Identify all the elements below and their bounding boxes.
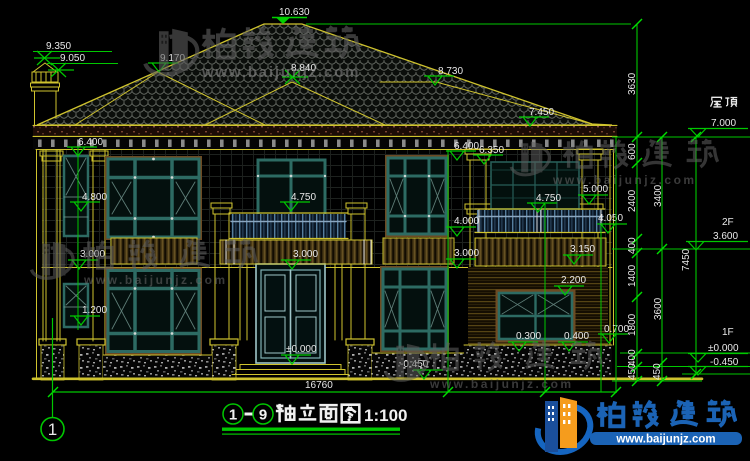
svg-text:16760: 16760: [305, 380, 333, 391]
svg-text:www.baijunjz.com: www.baijunjz.com: [83, 273, 228, 287]
svg-text:3600: 3600: [653, 297, 664, 320]
svg-text:600: 600: [627, 143, 638, 160]
svg-text:6.400: 6.400: [454, 141, 479, 152]
svg-text:7.000: 7.000: [711, 118, 736, 129]
svg-text:0.300: 0.300: [516, 331, 541, 342]
svg-text:1.200: 1.200: [82, 305, 107, 316]
svg-text:4.750: 4.750: [291, 192, 316, 203]
svg-text:9.350: 9.350: [46, 41, 71, 52]
svg-text:10.630: 10.630: [279, 7, 310, 18]
svg-text:4.800: 4.800: [82, 192, 107, 203]
svg-text:6.400: 6.400: [78, 137, 103, 148]
svg-text:3.150: 3.150: [570, 244, 595, 255]
svg-text:1800: 1800: [627, 313, 638, 336]
svg-text:1: 1: [48, 420, 57, 439]
svg-text:2F: 2F: [722, 217, 734, 228]
svg-text:400: 400: [627, 237, 638, 254]
svg-text:7450: 7450: [681, 248, 692, 271]
svg-text:3.000: 3.000: [293, 249, 318, 260]
svg-text:4.000: 4.000: [454, 216, 479, 227]
svg-text:www.baijunjz.com: www.baijunjz.com: [201, 64, 360, 81]
svg-text:www.baijunjz.com: www.baijunjz.com: [429, 377, 574, 391]
svg-text:7.450: 7.450: [529, 107, 554, 118]
svg-text:450: 450: [652, 363, 663, 380]
svg-text:±0.000: ±0.000: [286, 344, 317, 355]
svg-text:3400: 3400: [653, 184, 664, 207]
svg-text:1: 1: [229, 407, 237, 424]
svg-text:8.730: 8.730: [438, 66, 463, 77]
svg-text:4.750: 4.750: [536, 193, 561, 204]
svg-text:1:100: 1:100: [364, 406, 407, 425]
svg-text:1F: 1F: [722, 327, 734, 338]
svg-text:3630: 3630: [627, 72, 638, 95]
svg-text:3.000: 3.000: [454, 248, 479, 259]
svg-text:1400: 1400: [627, 264, 638, 287]
svg-text:6.350: 6.350: [479, 145, 504, 156]
svg-text:9.050: 9.050: [60, 53, 85, 64]
svg-text:9: 9: [259, 407, 267, 424]
svg-text:www.baijunjz.com: www.baijunjz.com: [552, 173, 697, 187]
svg-text:0.700: 0.700: [604, 324, 629, 335]
svg-text:4.050: 4.050: [598, 213, 623, 224]
svg-text:±0.000: ±0.000: [708, 343, 739, 354]
svg-text:0.400: 0.400: [564, 331, 589, 342]
svg-text:2.200: 2.200: [561, 275, 586, 286]
svg-text:www.baijunjz.com: www.baijunjz.com: [615, 434, 715, 446]
svg-text:450: 450: [627, 363, 638, 380]
svg-text:3.600: 3.600: [713, 231, 738, 242]
svg-text:2400: 2400: [627, 189, 638, 212]
